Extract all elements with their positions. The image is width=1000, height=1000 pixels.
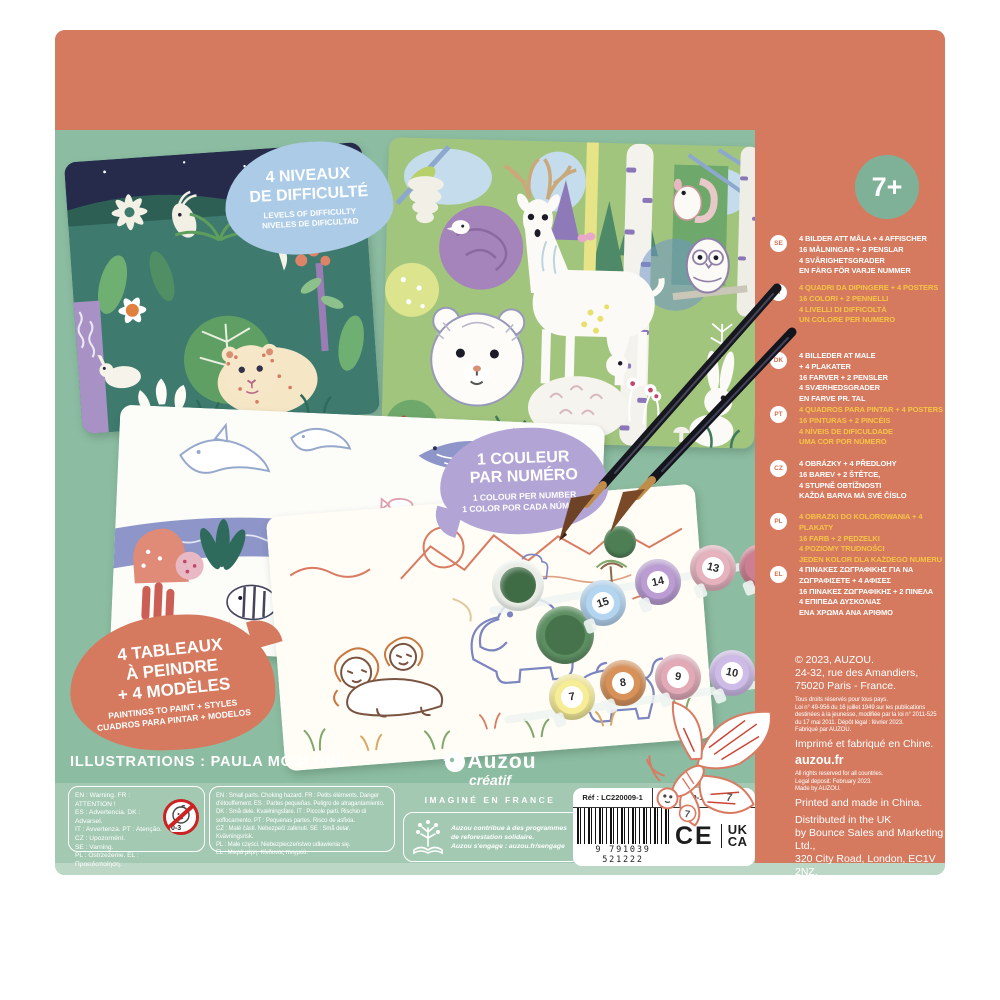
- butterfly-line-art: 7 7: [634, 683, 787, 840]
- paint-pot-15: 15: [580, 580, 626, 626]
- lang-lines-it: 4 QUADRI DA DIPINGERE + 4 POSTERS 16 COL…: [799, 283, 943, 326]
- box-back-panel: 4 NIVEAUX DE DIFFICULTÉ LEVELS OF DIFFIC…: [55, 30, 945, 875]
- lang-block-cz: CZ 4 OBRÁZKY + 4 PŘEDLOHY 16 BAREV + 2 Š…: [761, 459, 943, 502]
- distributor-address: Distributed in the UK by Bounce Sales an…: [795, 814, 945, 875]
- lang-code-pt: PT: [770, 406, 787, 423]
- lang-block-el: EL 4 ΠΙΝΑΚΕΣ ΖΩΓΡΑΦΙΚΗΣ ΓΙΑ ΝΑ ΖΩΓΡΑΦΙΣΕ…: [761, 565, 943, 619]
- made-in-fr: Imprimé et fabriqué en Chine.: [795, 738, 945, 750]
- legal-en-small: All rights reserved for all countries. L…: [795, 771, 945, 794]
- lang-code-el: EL: [770, 566, 787, 583]
- legal-fr-small: Tous droits réservés pour tous pays. Loi…: [795, 697, 945, 735]
- lang-code-cz: CZ: [770, 460, 787, 477]
- lang-lines-pt: 4 QUADROS PARA PINTAR + 4 POSTERS 16 PIN…: [799, 405, 943, 448]
- lang-code-se: SE: [770, 235, 787, 252]
- lang-block-it: IT 4 QUADRI DA DIPINGERE + 4 POSTERS 16 …: [761, 283, 943, 326]
- lang-block-dk: DK 4 BILLEDER AT MALE + 4 PLAKATER 16 FA…: [761, 351, 943, 405]
- lang-code-dk: DK: [770, 352, 787, 369]
- website-link: auzou.fr: [795, 753, 945, 767]
- lang-code-pl: PL: [770, 513, 787, 530]
- paint-pot-10: 10: [709, 650, 755, 696]
- paint-pot-7: 7: [549, 674, 595, 720]
- made-in-en: Printed and made in China.: [795, 797, 945, 809]
- lang-block-pl: PL 4 OBRAZKI DO KOLOROWANIA + 4 PLAKATY …: [761, 512, 943, 566]
- lang-block-se: SE 4 BILDER ATT MÅLA + 4 AFFISCHER 16 MÅ…: [761, 234, 943, 277]
- publisher-address: © 2023, AUZOU. 24-32, rue des Amandiers,…: [795, 654, 945, 693]
- paint-pot-13: 13: [690, 545, 736, 591]
- open-paint-pot: [492, 559, 544, 611]
- paint-pot-14: 14: [635, 559, 681, 605]
- lang-lines-se: 4 BILDER ATT MÅLA + 4 AFFISCHER 16 MÅLNI…: [799, 234, 943, 277]
- age-badge: 7+: [855, 155, 919, 219]
- legal-block: © 2023, AUZOU. 24-32, rue des Amandiers,…: [795, 654, 945, 875]
- green-pot-lid: [604, 526, 636, 558]
- lang-code-it: IT: [770, 284, 787, 301]
- paint-pot-8: 8: [600, 660, 646, 706]
- top-coral-band: [55, 30, 945, 130]
- paint-pot-partial: [739, 544, 755, 588]
- lang-lines-cz: 4 OBRÁZKY + 4 PŘEDLOHY 16 BAREV + 2 ŠTĚT…: [799, 459, 943, 502]
- package-back: 4 NIVEAUX DE DIFFICULTÉ LEVELS OF DIFFIC…: [0, 0, 1000, 1000]
- lang-block-pt: PT 4 QUADROS PARA PINTAR + 4 POSTERS 16 …: [761, 405, 943, 448]
- lang-lines-dk: 4 BILLEDER AT MALE + 4 PLAKATER 16 FARVE…: [799, 351, 943, 405]
- lang-lines-pl: 4 OBRAZKI DO KOLOROWANIA + 4 PLAKATY 16 …: [799, 512, 943, 566]
- lang-lines-el: 4 ΠΙΝΑΚΕΣ ΖΩΓΡΑΦΙΚΗΣ ΓΙΑ ΝΑ ΖΩΓΡΑΦΙΣΕΤΕ …: [799, 565, 943, 619]
